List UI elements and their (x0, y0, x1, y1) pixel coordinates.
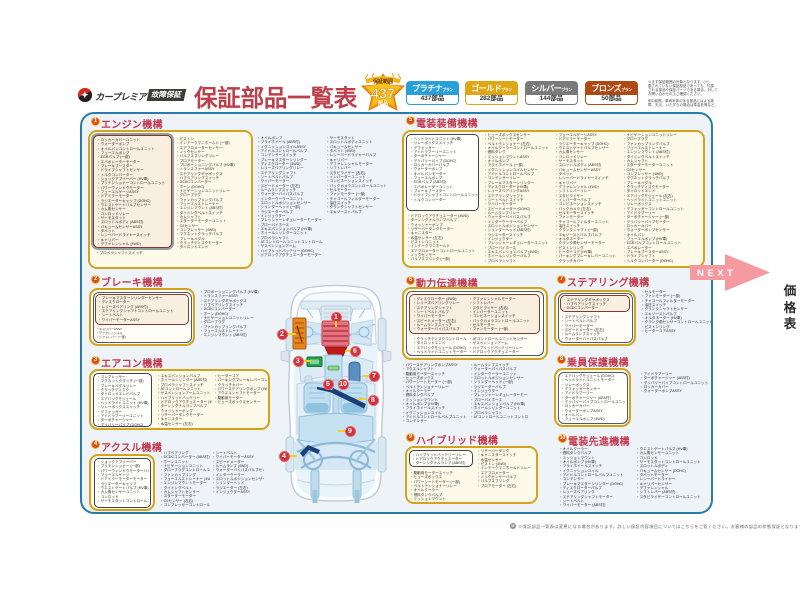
svg-text:保証範囲: 保証範囲 (372, 78, 393, 85)
svg-text:NEXT: NEXT (697, 268, 736, 279)
svg-text:部品: 部品 (378, 100, 388, 107)
